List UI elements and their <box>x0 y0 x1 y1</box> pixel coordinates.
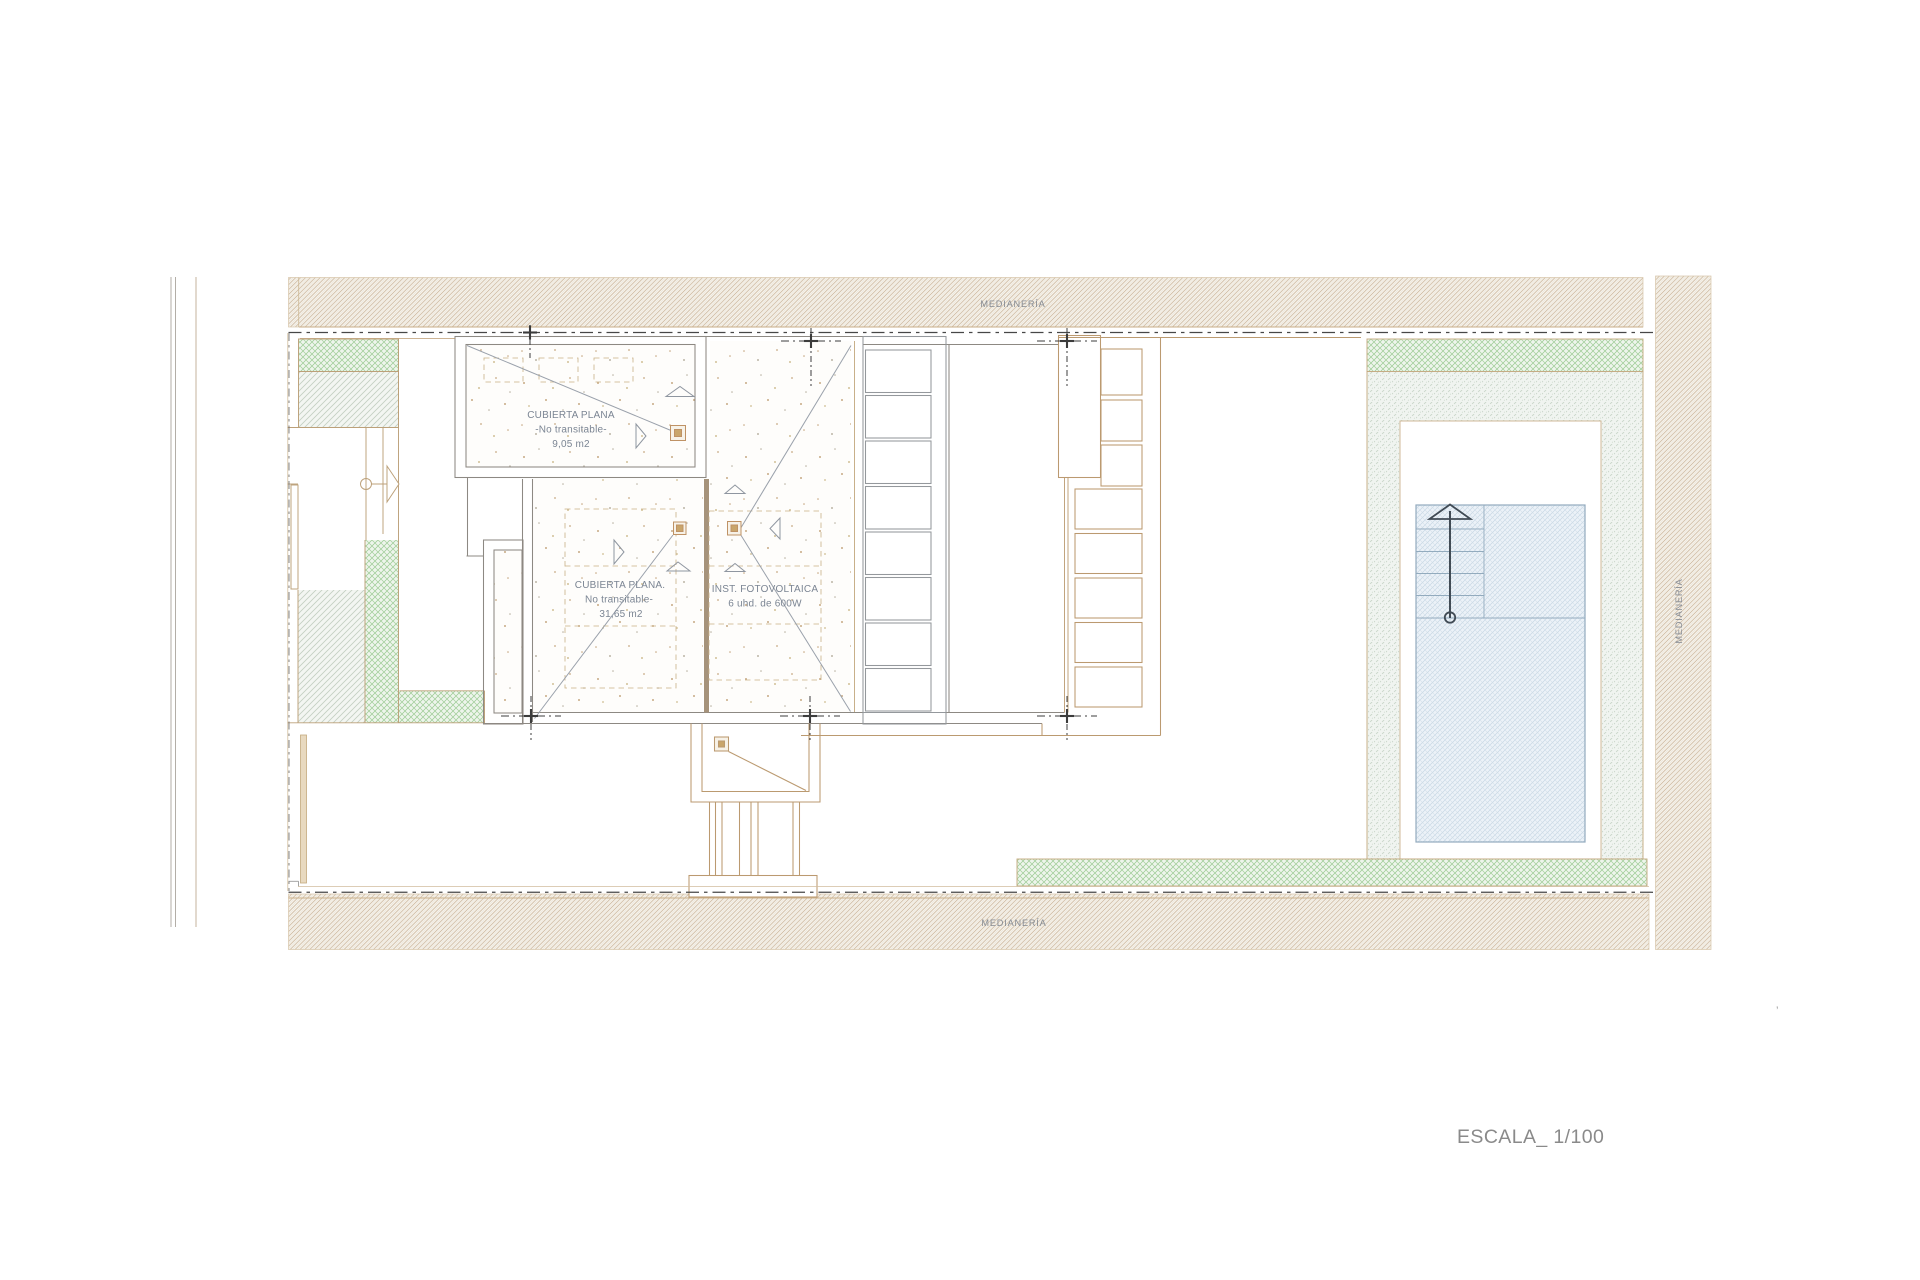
svg-text:’: ’ <box>1776 1005 1778 1017</box>
svg-text:ESCALA_ 1/100: ESCALA_ 1/100 <box>1457 1126 1604 1148</box>
svg-text:No transitable-: No transitable- <box>585 595 653 606</box>
svg-text:31,65 m2: 31,65 m2 <box>599 609 643 620</box>
svg-text:6 uhd. de 600W: 6 uhd. de 600W <box>728 599 802 610</box>
svg-text:9,05 m2: 9,05 m2 <box>552 439 590 450</box>
svg-text:INST. FOTOVOLTAICA: INST. FOTOVOLTAICA <box>712 584 819 595</box>
svg-text:CUBIERTA PLANA.: CUBIERTA PLANA. <box>575 580 665 591</box>
svg-text:-No transitable-: -No transitable- <box>535 425 607 436</box>
svg-text:MEDIANERÍA: MEDIANERÍA <box>981 918 1046 928</box>
svg-text:CUBIERTA PLANA: CUBIERTA PLANA <box>527 410 615 421</box>
svg-text:MEDIANERÍA: MEDIANERÍA <box>980 299 1045 309</box>
svg-text:MEDIANERÍA: MEDIANERÍA <box>1674 578 1684 643</box>
